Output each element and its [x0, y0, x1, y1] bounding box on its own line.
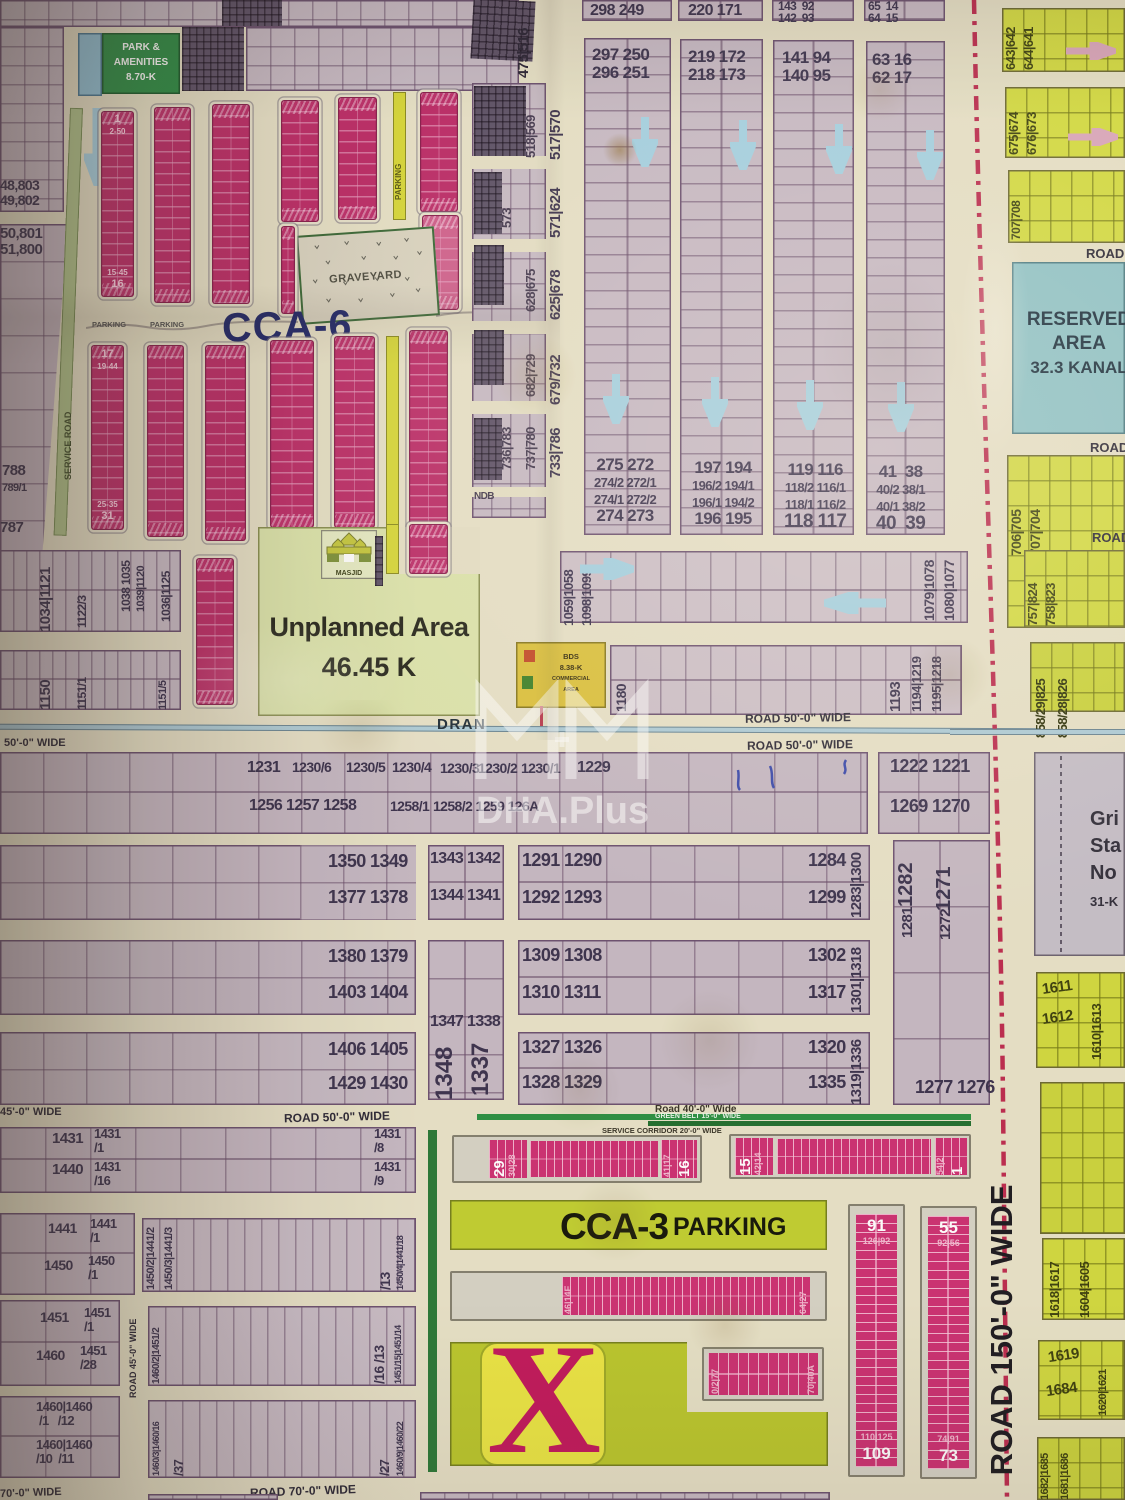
svg-text:ROAD 150'-0" WIDE: ROAD 150'-0" WIDE — [986, 1185, 1019, 1476]
